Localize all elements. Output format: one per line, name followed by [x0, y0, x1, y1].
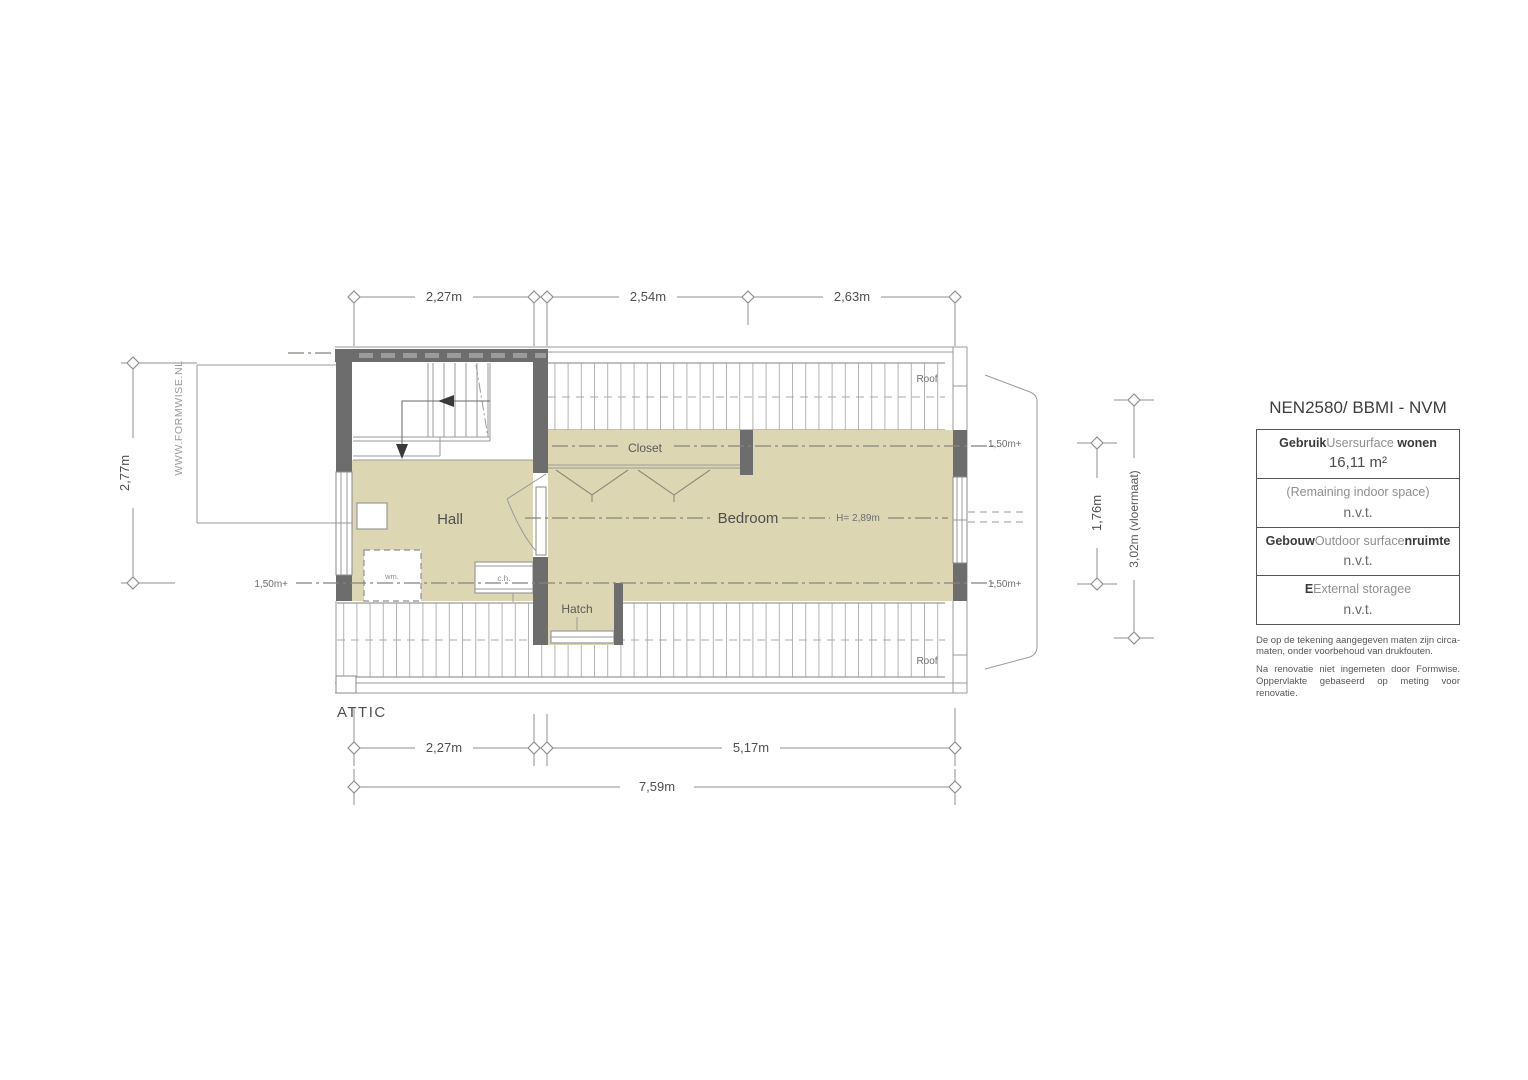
legend-hdr-part: wonen	[1394, 436, 1437, 450]
dim-right-floor: 3,02m (vloermaat)	[1127, 470, 1141, 567]
legend-value: n.v.t.	[1259, 504, 1457, 520]
legend-value: 16,11 m²	[1259, 454, 1457, 471]
room-label-hall: Hall	[437, 511, 463, 528]
legend-hdr-part: Usersurface	[1326, 436, 1393, 450]
legend-hdr-part: External storage	[1313, 582, 1404, 596]
headroom-label-right-bottom: 1,50m+	[988, 579, 1022, 590]
dimension-right-inner: 1,76m	[1077, 437, 1117, 590]
height-note-label: H= 2,89m	[836, 513, 880, 524]
legend-note-2: Na renovatie niet ingemeten door Formwis…	[1256, 664, 1460, 700]
roof-band-bottom	[337, 603, 945, 677]
headroom-label-right-top: 1,50m+	[988, 439, 1022, 450]
ch-label: c.h.	[498, 574, 511, 583]
stair-arrow-down	[396, 444, 408, 459]
dimension-left: 2,77m	[117, 357, 197, 589]
floorplan-page: { "plan": { "floor_name": "ATTIC", "wate…	[0, 0, 1528, 1080]
legend-row-external-storage: EExternal storagee n.v.t.	[1257, 576, 1459, 623]
shelf-box	[357, 503, 387, 529]
window-right	[953, 477, 967, 563]
legend-table: GebruikUsersurface wonen 16,11 m² (Remai…	[1256, 429, 1460, 625]
legend-title: NEN2580/ BBMI - NVM	[1256, 398, 1460, 418]
void-outline	[197, 365, 336, 523]
roof-label-top: Roof	[916, 374, 937, 385]
dim-top-3: 2,63m	[834, 289, 870, 304]
legend-hdr-part: e	[1404, 582, 1411, 596]
room-label-bedroom: Bedroom	[718, 510, 779, 527]
legend-hdr-part: Outdoor surface	[1315, 534, 1405, 548]
dimension-top: 2,27m 2,54m 2,63m	[348, 289, 961, 346]
legend-hdr-part: E	[1305, 582, 1313, 596]
legend-row-usersurface: GebruikUsersurface wonen 16,11 m²	[1257, 430, 1459, 479]
legend-hdr-part: Gebouw	[1266, 534, 1315, 548]
dim-left: 2,77m	[117, 455, 132, 491]
legend-notes: De op de tekening aangegeven maten zijn …	[1256, 635, 1460, 700]
room-label-closet: Closet	[628, 441, 663, 455]
dimension-bottom-total: 7,59m	[348, 769, 961, 805]
dim-right-inner: 1,76m	[1089, 495, 1104, 531]
stair-arrow-left	[438, 395, 454, 407]
legend-hdr-part: Gebruik	[1279, 436, 1326, 450]
roof-label-bottom: Roof	[916, 656, 937, 667]
surface-legend: NEN2580/ BBMI - NVM GebruikUsersurface w…	[1256, 398, 1460, 706]
dim-top-2: 2,54m	[630, 289, 666, 304]
staircase	[353, 363, 533, 460]
headroom-label-left: 1,50m+	[254, 579, 288, 590]
window-left	[336, 472, 352, 575]
dim-top-1: 2,27m	[426, 289, 462, 304]
legend-value: n.v.t.	[1259, 552, 1457, 568]
legend-value: n.v.t.	[1259, 601, 1457, 617]
hatch-label: Hatch	[561, 602, 592, 616]
legend-hdr-part: (Remaining indoor space)	[1286, 485, 1429, 499]
legend-hdr-part: nruimte	[1405, 534, 1451, 548]
dim-bottom-1: 2,27m	[426, 740, 462, 755]
roof-band-top	[548, 363, 945, 430]
dim-bottom-2: 5,17m	[733, 740, 769, 755]
legend-row-remaining-space: (Remaining indoor space) n.v.t.	[1257, 479, 1459, 527]
legend-row-outdoor-surface: GebouwOutdoor surfacenruimte n.v.t.	[1257, 528, 1459, 576]
wm-label: wm.	[384, 572, 399, 581]
dimension-bottom-inner: 2,27m 5,17m	[348, 708, 961, 766]
dimension-right-floor: 3,02m (vloermaat)	[1114, 394, 1154, 644]
legend-note-1: De op de tekening aangegeven maten zijn …	[1256, 635, 1460, 659]
watermark: WWW.FORMWISE.NL	[173, 360, 185, 475]
dim-total: 7,59m	[639, 779, 675, 794]
floor-name-label: ATTIC	[337, 704, 387, 721]
